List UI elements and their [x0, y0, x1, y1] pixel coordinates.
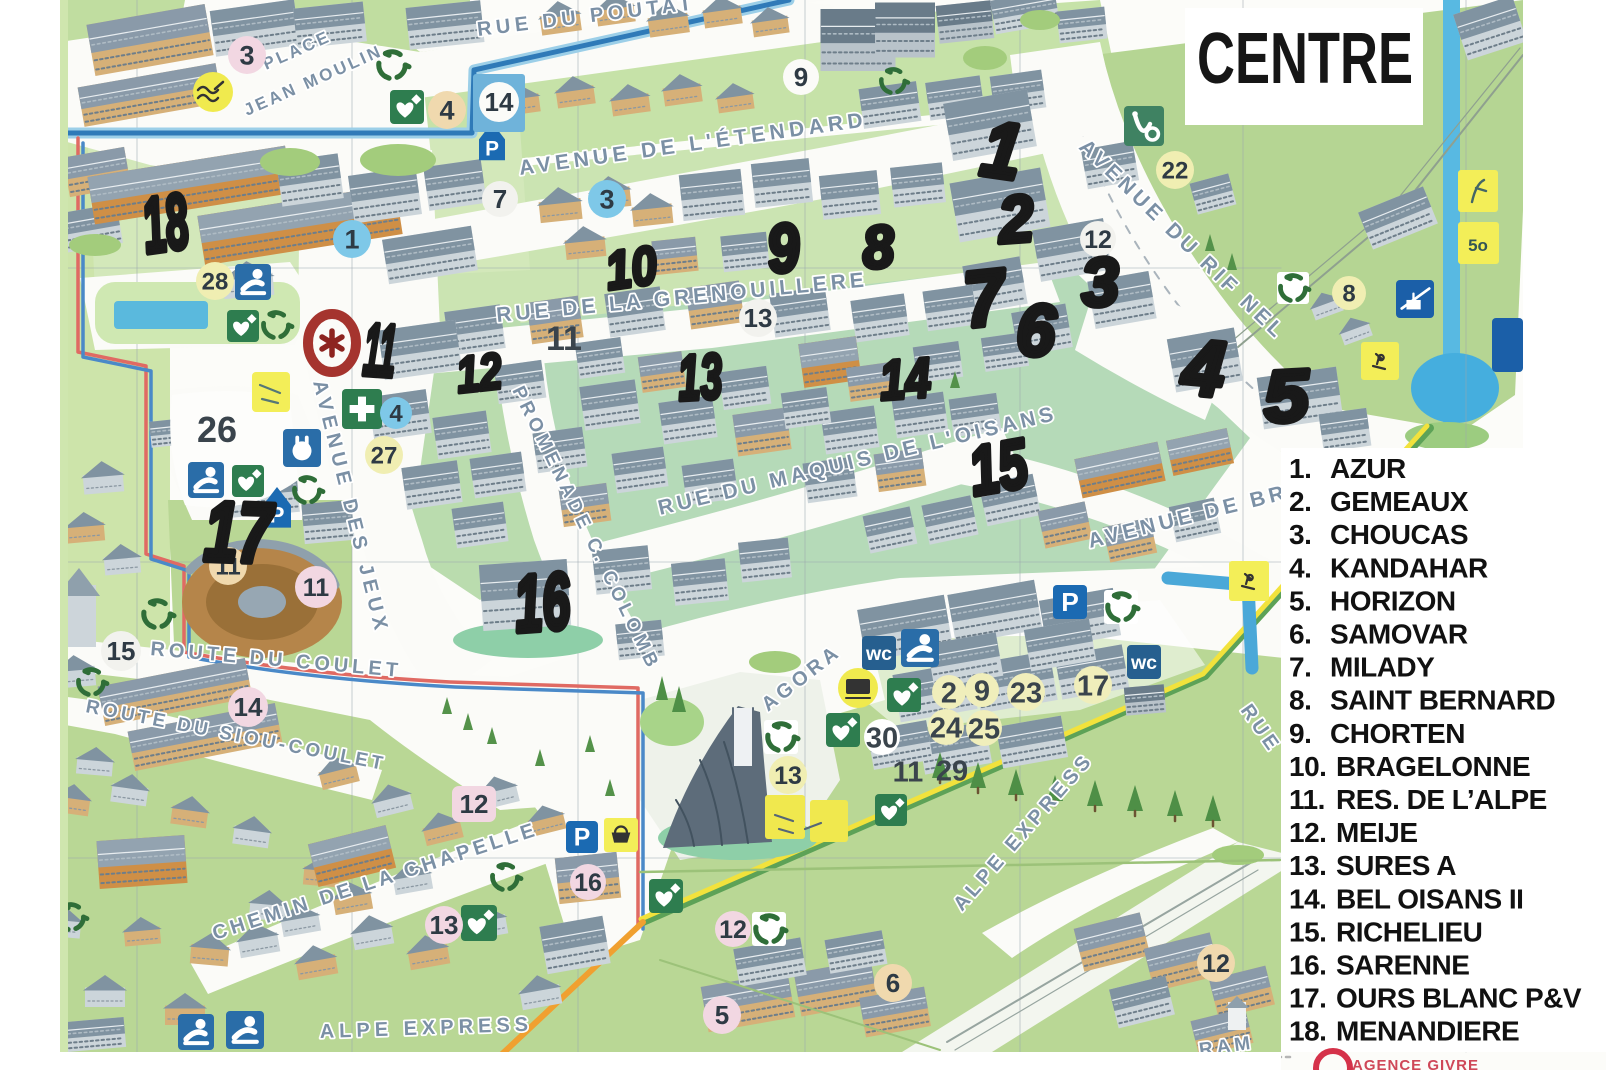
svg-text:28: 28: [202, 268, 229, 295]
svg-text:11: 11: [361, 309, 399, 393]
svg-text:13: 13: [676, 341, 724, 414]
svg-text:2: 2: [941, 677, 957, 709]
svg-text:9.: 9.: [1289, 718, 1311, 749]
svg-text:1: 1: [344, 224, 359, 254]
svg-text:4.: 4.: [1289, 552, 1311, 583]
svg-text:23: 23: [1010, 677, 1042, 709]
svg-text:wc: wc: [865, 643, 892, 665]
svg-text:17.: 17.: [1289, 983, 1326, 1014]
svg-text:6: 6: [886, 968, 900, 998]
svg-text:6: 6: [1015, 290, 1058, 373]
svg-text:10.: 10.: [1289, 751, 1326, 782]
svg-text:GEMEAUX: GEMEAUX: [1330, 486, 1469, 517]
svg-text:11: 11: [546, 320, 582, 358]
svg-text:P: P: [1061, 587, 1079, 617]
svg-text:12: 12: [460, 789, 489, 819]
svg-text:CHORTEN: CHORTEN: [1330, 718, 1465, 749]
svg-text:12: 12: [719, 916, 747, 944]
svg-text:10: 10: [602, 235, 661, 302]
svg-text:29: 29: [936, 755, 968, 787]
svg-text:wc: wc: [1130, 652, 1157, 674]
svg-text:AGENCE GIVRE: AGENCE GIVRE: [1352, 1057, 1479, 1070]
svg-text:BEL OISANS II: BEL OISANS II: [1336, 883, 1523, 914]
svg-text:CHOUCAS: CHOUCAS: [1330, 519, 1468, 550]
svg-text:25: 25: [968, 713, 1000, 745]
svg-text:SARENNE: SARENNE: [1336, 950, 1469, 981]
svg-text:P: P: [485, 138, 499, 161]
svg-text:12: 12: [1202, 950, 1230, 978]
svg-text:22: 22: [1162, 157, 1189, 184]
svg-text:2.: 2.: [1289, 486, 1311, 517]
svg-text:SAINT BERNARD: SAINT BERNARD: [1330, 685, 1556, 716]
svg-text:13: 13: [774, 762, 802, 790]
svg-text:11: 11: [303, 574, 330, 602]
svg-text:5: 5: [715, 1000, 729, 1030]
svg-text:SAMOVAR: SAMOVAR: [1330, 619, 1468, 650]
svg-text:13: 13: [430, 910, 459, 940]
svg-text:5.: 5.: [1289, 585, 1311, 616]
svg-text:8: 8: [1342, 280, 1355, 307]
svg-text:12.: 12.: [1289, 817, 1326, 848]
svg-text:16.: 16.: [1289, 950, 1326, 981]
svg-text:16: 16: [574, 869, 602, 897]
svg-text:17: 17: [1077, 670, 1109, 702]
svg-text:17: 17: [203, 484, 276, 580]
svg-text:9: 9: [974, 675, 990, 707]
svg-text:BRAGELONNE: BRAGELONNE: [1336, 751, 1530, 782]
svg-text:SURES A: SURES A: [1336, 850, 1456, 881]
svg-text:MILADY: MILADY: [1330, 652, 1435, 683]
svg-text:3: 3: [1079, 244, 1121, 322]
svg-text:P: P: [574, 824, 591, 851]
svg-text:11.: 11.: [1289, 784, 1325, 815]
svg-text:MENANDIERE: MENANDIERE: [1336, 1016, 1519, 1047]
svg-text:3: 3: [239, 40, 254, 70]
svg-text:9: 9: [794, 62, 808, 92]
svg-text:4: 4: [389, 400, 403, 427]
svg-text:3.: 3.: [1289, 519, 1311, 550]
svg-text:HORIZON: HORIZON: [1330, 585, 1456, 616]
svg-text:16: 16: [512, 557, 574, 650]
svg-text:CENTRE: CENTRE: [1197, 18, 1413, 100]
svg-text:13: 13: [744, 303, 773, 333]
svg-text:12: 12: [454, 342, 505, 404]
svg-text:30: 30: [866, 722, 898, 754]
svg-text:AZUR: AZUR: [1330, 453, 1406, 484]
svg-text:7.: 7.: [1289, 652, 1311, 683]
svg-text:2: 2: [995, 181, 1036, 257]
svg-text:8: 8: [860, 213, 897, 282]
svg-text:5o: 5o: [1468, 236, 1488, 255]
svg-text:3: 3: [599, 184, 614, 214]
svg-text:26: 26: [197, 409, 237, 450]
svg-text:8.: 8.: [1289, 685, 1311, 716]
svg-text:4: 4: [439, 95, 454, 125]
svg-text:MEIJE: MEIJE: [1336, 817, 1418, 848]
svg-text:OURS BLANC P&V: OURS BLANC P&V: [1336, 983, 1582, 1014]
svg-text:14.: 14.: [1289, 883, 1326, 914]
svg-text:KANDAHAR: KANDAHAR: [1330, 552, 1488, 583]
svg-text:4: 4: [1178, 324, 1229, 415]
svg-text:14: 14: [234, 692, 263, 722]
svg-text:RICHELIEU: RICHELIEU: [1336, 916, 1482, 947]
svg-text:RES. DE L’ALPE: RES. DE L’ALPE: [1336, 784, 1547, 815]
svg-text:15: 15: [107, 636, 136, 666]
svg-text:13.: 13.: [1289, 850, 1326, 881]
svg-text:6.: 6.: [1289, 619, 1311, 650]
svg-text:24: 24: [930, 712, 962, 744]
svg-text:7: 7: [493, 184, 507, 214]
svg-text:1.: 1.: [1289, 453, 1311, 484]
svg-text:15.: 15.: [1289, 916, 1326, 947]
svg-text:18.: 18.: [1289, 1016, 1326, 1047]
svg-text:14: 14: [877, 346, 932, 412]
svg-text:11: 11: [893, 756, 924, 788]
svg-text:14: 14: [485, 87, 514, 117]
svg-text:5: 5: [1262, 355, 1312, 438]
svg-text:27: 27: [371, 442, 398, 469]
